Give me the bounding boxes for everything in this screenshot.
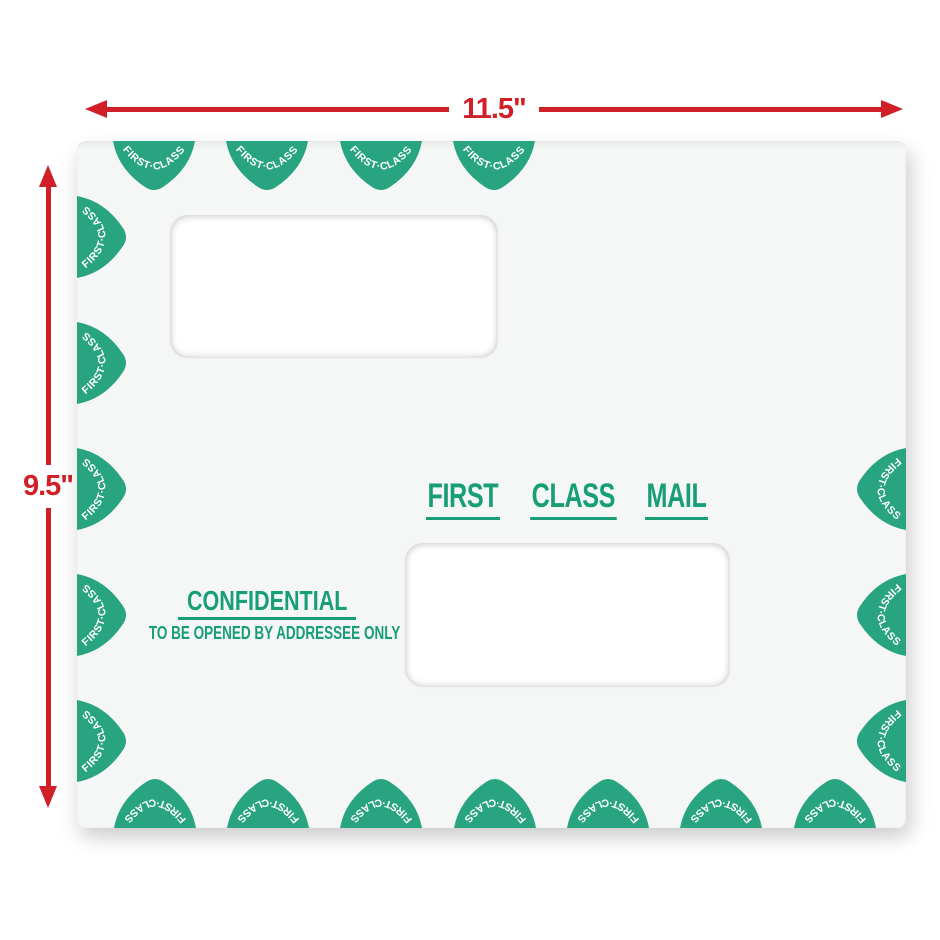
product-image: 11.5" 9.5" FIRST·CLASSFIRST·CLASSFIRST·C… xyxy=(0,0,940,940)
arrowhead-left-icon xyxy=(85,100,107,118)
arrowhead-right-icon xyxy=(881,100,903,118)
arrowhead-up-icon xyxy=(39,165,57,187)
dimension-line xyxy=(107,107,449,112)
dimension-line xyxy=(539,107,881,112)
dimension-line xyxy=(46,187,51,465)
first-class-stamp-icon: FIRST·CLASS xyxy=(439,141,549,196)
first-class-stamp-icon: FIRST·CLASS xyxy=(326,141,436,196)
first-class-stamp-icon: FIRST·CLASS xyxy=(213,773,323,828)
first-class-stamp-icon: FIRST·CLASS xyxy=(326,773,436,828)
first-class-stamp-icon: FIRST·CLASS xyxy=(77,308,132,418)
first-class-mail-word: FIRST xyxy=(426,479,500,520)
dimension-line xyxy=(46,508,51,786)
first-class-stamp-icon: FIRST·CLASS xyxy=(780,773,890,828)
width-dimension: 11.5" xyxy=(85,92,903,126)
height-dimension: 9.5" xyxy=(20,165,76,808)
address-window-lower xyxy=(405,543,730,687)
first-class-stamp-icon: FIRST·CLASS xyxy=(440,773,550,828)
envelope: FIRST·CLASSFIRST·CLASSFIRST·CLASSFIRST·C… xyxy=(77,141,906,828)
height-dimension-label: 9.5" xyxy=(23,465,73,508)
first-class-mail-word: CLASS xyxy=(530,479,616,520)
first-class-stamp-icon: FIRST·CLASS xyxy=(851,434,906,544)
first-class-stamp-icon: FIRST·CLASS xyxy=(851,560,906,670)
first-class-stamp-icon: FIRST·CLASS xyxy=(77,182,132,292)
arrowhead-down-icon xyxy=(39,786,57,808)
confidential-underline xyxy=(178,617,356,620)
width-dimension-label: 11.5" xyxy=(449,93,539,126)
first-class-stamp-icon: FIRST·CLASS xyxy=(100,773,210,828)
first-class-mail-text: FIRST CLASS MAIL xyxy=(396,479,736,520)
confidential-heading: CONFIDENTIAL xyxy=(187,587,347,615)
confidential-block: CONFIDENTIAL TO BE OPENED BY ADDRESSEE O… xyxy=(107,587,427,644)
address-window-upper xyxy=(170,215,498,358)
first-class-stamp-icon: FIRST·CLASS xyxy=(77,434,132,544)
first-class-mail-word: MAIL xyxy=(645,479,708,520)
first-class-stamp-icon: FIRST·CLASS xyxy=(212,141,322,196)
first-class-stamp-icon: FIRST·CLASS xyxy=(666,773,776,828)
first-class-stamp-icon: FIRST·CLASS xyxy=(553,773,663,828)
addressee-note: TO BE OPENED BY ADDRESSEE ONLY xyxy=(149,624,400,642)
